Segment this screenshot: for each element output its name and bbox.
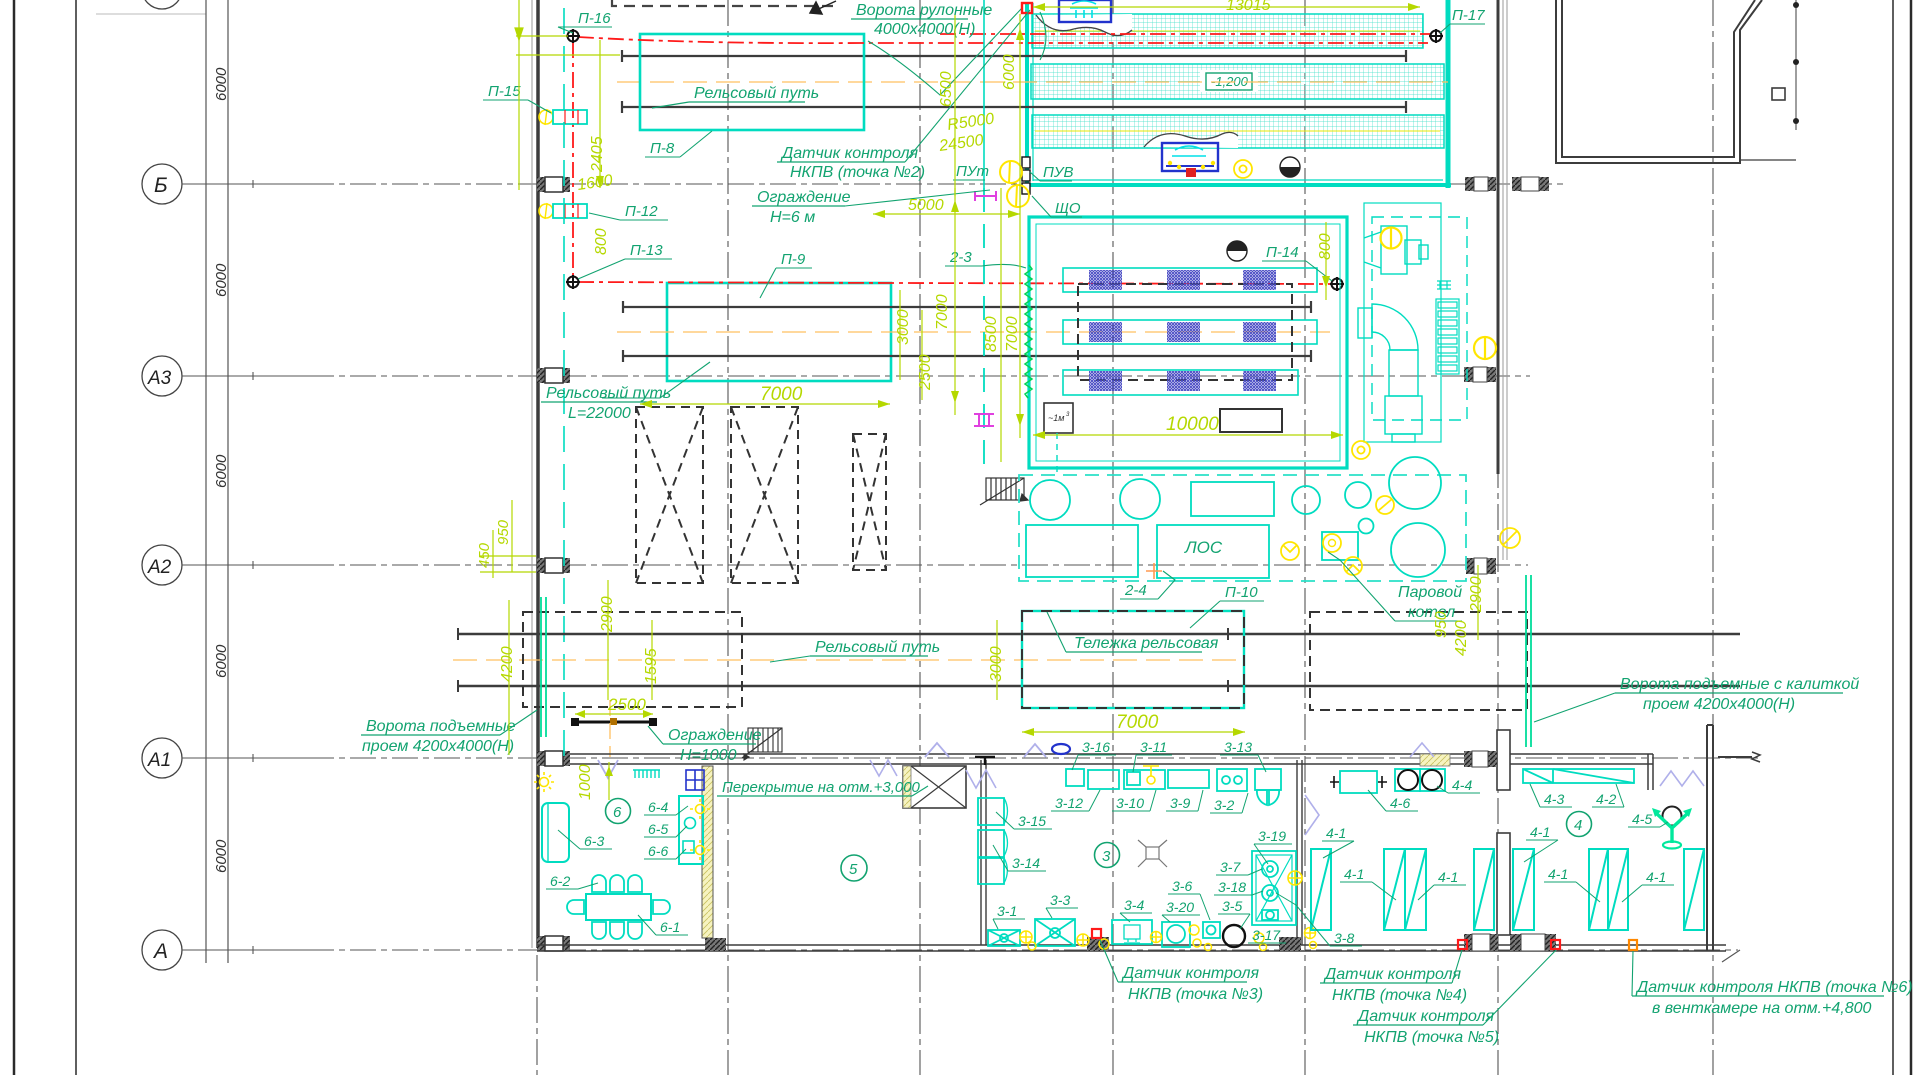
svg-text:4000х4000(Н): 4000х4000(Н) <box>874 21 975 38</box>
svg-text:7000: 7000 <box>1116 712 1159 733</box>
svg-text:А3: А3 <box>147 368 172 389</box>
svg-text:проем 4200х4000(Н): проем 4200х4000(Н) <box>1643 696 1795 713</box>
svg-text:3-12: 3-12 <box>1055 795 1083 811</box>
svg-text:А: А <box>152 940 168 963</box>
svg-text:6-5: 6-5 <box>648 821 668 837</box>
svg-text:П-15: П-15 <box>488 83 521 100</box>
svg-text:Паровой: Паровой <box>1398 584 1462 601</box>
svg-text:950: 950 <box>495 519 512 545</box>
svg-text:6000: 6000 <box>213 454 230 488</box>
svg-text:НКПВ (точка №3): НКПВ (точка №3) <box>1128 986 1263 1003</box>
svg-text:4-1: 4-1 <box>1646 869 1666 885</box>
svg-text:Датчик контроля НКПВ (точка №6: Датчик контроля НКПВ (точка №6) <box>1635 979 1913 996</box>
svg-text:6500: 6500 <box>938 71 955 107</box>
svg-text:П-9: П-9 <box>781 251 806 268</box>
svg-text:L=22000: L=22000 <box>568 405 631 422</box>
svg-text:2500: 2500 <box>917 354 934 391</box>
svg-text:3-20: 3-20 <box>1166 899 1194 915</box>
svg-text:4200: 4200 <box>499 646 516 682</box>
svg-text:3-17: 3-17 <box>1252 927 1281 943</box>
svg-text:ЩО: ЩО <box>1055 200 1081 217</box>
svg-text:Перекрытие на отм.+3,000: Перекрытие на отм.+3,000 <box>722 779 921 796</box>
svg-text:4-1: 4-1 <box>1344 866 1364 882</box>
svg-text:7000: 7000 <box>1004 316 1021 352</box>
svg-text:3-11: 3-11 <box>1140 739 1167 755</box>
svg-text:6000: 6000 <box>1001 54 1018 90</box>
svg-text:Рельсовый путь: Рельсовый путь <box>815 639 940 656</box>
svg-text:6000: 6000 <box>213 644 230 678</box>
svg-text:ПУт: ПУт <box>956 163 989 180</box>
svg-text:НКПВ (точка №2): НКПВ (точка №2) <box>790 164 925 181</box>
svg-text:3-2: 3-2 <box>1214 797 1234 813</box>
svg-text:4-3: 4-3 <box>1544 791 1564 807</box>
svg-text:П-8: П-8 <box>650 140 675 157</box>
svg-text:А2: А2 <box>147 557 172 578</box>
svg-text:6-1: 6-1 <box>660 919 680 935</box>
svg-text:3-10: 3-10 <box>1116 795 1144 811</box>
svg-text:3-4: 3-4 <box>1124 897 1144 913</box>
svg-text:Ограждение: Ограждение <box>757 189 851 206</box>
svg-text:3-7: 3-7 <box>1220 859 1241 875</box>
svg-text:в венткамере на отм.+4,800: в венткамере на отм.+4,800 <box>1652 1000 1871 1017</box>
svg-text:5000: 5000 <box>908 197 944 214</box>
svg-text:проем 4200х4000(Н): проем 4200х4000(Н) <box>362 738 514 755</box>
svg-text:Датчик контроля: Датчик контроля <box>1121 965 1260 982</box>
svg-text:800: 800 <box>593 228 610 255</box>
svg-text:6-3: 6-3 <box>584 833 604 849</box>
svg-text:3-14: 3-14 <box>1012 855 1040 871</box>
svg-text:Ограждение: Ограждение <box>668 727 762 744</box>
svg-text:Датчик контроля: Датчик контроля <box>1356 1008 1495 1025</box>
svg-text:НКПВ (точка №4): НКПВ (точка №4) <box>1332 987 1467 1004</box>
svg-text:3000: 3000 <box>895 309 912 345</box>
svg-text:7000: 7000 <box>760 384 803 405</box>
svg-text:Датчик контроля: Датчик контроля <box>780 145 919 162</box>
svg-text:3-18: 3-18 <box>1218 879 1246 895</box>
svg-text:3-15: 3-15 <box>1018 813 1046 829</box>
svg-text:3-13: 3-13 <box>1224 739 1252 755</box>
svg-text:6-6: 6-6 <box>648 843 668 859</box>
svg-text:450: 450 <box>476 542 493 568</box>
svg-text:2900: 2900 <box>1468 576 1485 613</box>
svg-text:6: 6 <box>613 804 622 821</box>
svg-text:2405: 2405 <box>589 136 606 173</box>
svg-text:2-3: 2-3 <box>949 249 972 266</box>
svg-text:6-4: 6-4 <box>648 799 668 815</box>
svg-text:А1: А1 <box>147 750 171 771</box>
svg-text:6000: 6000 <box>213 263 230 297</box>
svg-text:4-4: 4-4 <box>1452 777 1472 793</box>
svg-text:~1м: ~1м <box>1048 413 1064 423</box>
svg-text:4-1: 4-1 <box>1548 866 1568 882</box>
svg-text:7000: 7000 <box>934 294 951 330</box>
svg-text:8500: 8500 <box>983 316 1000 352</box>
svg-text:4-6: 4-6 <box>1390 795 1410 811</box>
svg-text:2-4: 2-4 <box>1124 582 1147 599</box>
svg-text:1000: 1000 <box>577 764 594 800</box>
svg-text:3-5: 3-5 <box>1222 898 1242 914</box>
svg-text:6000: 6000 <box>213 839 230 873</box>
svg-text:3-19: 3-19 <box>1258 828 1286 844</box>
svg-text:Тележка рельсовая: Тележка рельсовая <box>1074 635 1219 652</box>
svg-text:5: 5 <box>849 861 858 878</box>
svg-text:П-13: П-13 <box>630 242 663 259</box>
svg-text:4-1: 4-1 <box>1530 824 1550 840</box>
svg-text:П-10: П-10 <box>1225 584 1258 601</box>
svg-text:6-2: 6-2 <box>550 873 570 889</box>
svg-text:Рельсовый путь: Рельсовый путь <box>546 385 671 402</box>
svg-text:П-14: П-14 <box>1266 244 1299 261</box>
svg-text:Н=1000: Н=1000 <box>680 747 737 764</box>
svg-text:3: 3 <box>1102 848 1111 865</box>
svg-text:П-16: П-16 <box>578 10 611 27</box>
svg-text:Датчик контроля: Датчик контроля <box>1323 966 1462 983</box>
svg-text:4: 4 <box>1574 817 1582 834</box>
svg-text:950: 950 <box>1433 611 1450 638</box>
svg-text:Ворота подъемные с калиткой: Ворота подъемные с калиткой <box>1620 676 1859 693</box>
svg-text:Ворота подъемные: Ворота подъемные <box>366 718 516 735</box>
svg-text:Б: Б <box>154 174 168 197</box>
svg-text:Н=6 м: Н=6 м <box>770 209 815 226</box>
svg-text:П-17: П-17 <box>1452 7 1485 24</box>
svg-text:4-1: 4-1 <box>1438 869 1458 885</box>
svg-text:3-6: 3-6 <box>1172 878 1192 894</box>
svg-text:3-3: 3-3 <box>1050 892 1070 908</box>
svg-text:3-8: 3-8 <box>1334 930 1354 946</box>
svg-text:Ворота рулонные: Ворота рулонные <box>856 2 992 19</box>
svg-text:3-16: 3-16 <box>1082 739 1110 755</box>
svg-text:3-1: 3-1 <box>997 903 1017 919</box>
svg-text:2500: 2500 <box>607 695 646 714</box>
svg-text:10000: 10000 <box>1166 414 1219 435</box>
svg-text:4-1: 4-1 <box>1326 825 1346 841</box>
svg-text:4-5: 4-5 <box>1632 811 1652 827</box>
svg-text:НКПВ (точка №5): НКПВ (точка №5) <box>1364 1029 1499 1046</box>
svg-text:6000: 6000 <box>213 67 230 101</box>
svg-text:4200: 4200 <box>1453 620 1470 656</box>
svg-text:4-2: 4-2 <box>1596 791 1616 807</box>
svg-text:ПУВ: ПУВ <box>1043 164 1073 181</box>
svg-text:П-12: П-12 <box>625 203 658 220</box>
svg-text:ЛОС: ЛОС <box>1184 538 1223 557</box>
svg-text:3-9: 3-9 <box>1170 795 1190 811</box>
svg-text:Рельсовый путь: Рельсовый путь <box>694 85 819 102</box>
